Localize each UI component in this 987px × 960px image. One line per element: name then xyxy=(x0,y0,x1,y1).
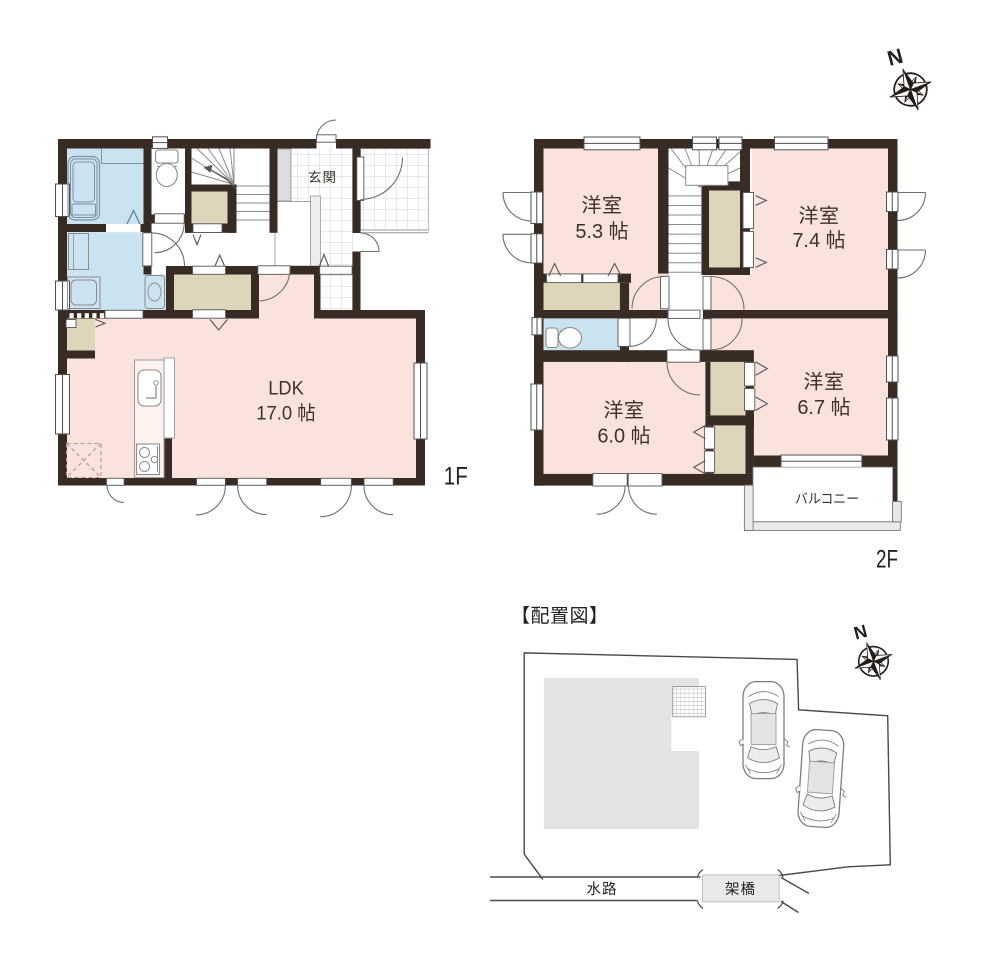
svg-text:1F: 1F xyxy=(444,463,468,491)
svg-text:17.0 帖: 17.0 帖 xyxy=(256,403,316,425)
svg-text:バルコニー: バルコニー xyxy=(795,492,859,507)
svg-text:玄関: 玄関 xyxy=(308,169,337,185)
svg-text:2F: 2F xyxy=(876,546,898,574)
svg-text:6.7 帖: 6.7 帖 xyxy=(797,396,850,419)
svg-text:水路: 水路 xyxy=(587,881,618,898)
svg-text:7.4 帖: 7.4 帖 xyxy=(792,229,845,252)
svg-text:洋室: 洋室 xyxy=(604,399,645,422)
svg-text:洋室: 洋室 xyxy=(799,205,840,228)
svg-text:【配置図】: 【配置図】 xyxy=(511,605,609,627)
svg-text:5.3 帖: 5.3 帖 xyxy=(575,220,628,243)
svg-text:LDK: LDK xyxy=(268,379,304,400)
svg-text:6.0 帖: 6.0 帖 xyxy=(597,425,650,448)
svg-text:洋室: 洋室 xyxy=(804,371,845,394)
svg-text:洋室: 洋室 xyxy=(582,194,623,217)
svg-text:架橋: 架橋 xyxy=(725,881,756,898)
